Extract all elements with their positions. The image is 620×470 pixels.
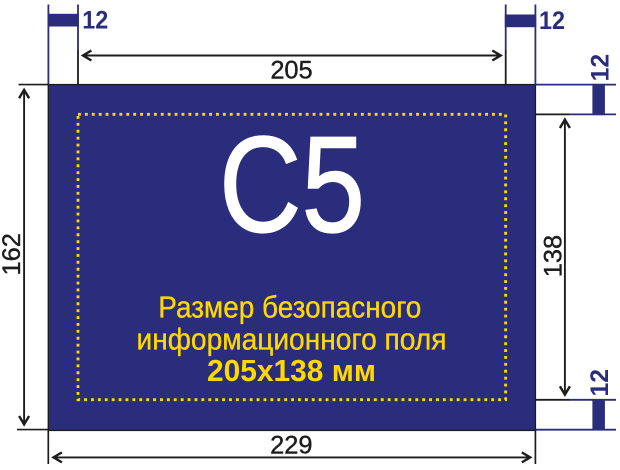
svg-text:12: 12 (587, 54, 615, 82)
svg-text:12: 12 (539, 7, 565, 35)
svg-text:205: 205 (270, 57, 312, 85)
svg-text:205х138 мм: 205х138 мм (207, 354, 376, 388)
svg-text:162: 162 (0, 233, 26, 275)
svg-text:Размер безопасного: Размер безопасного (158, 291, 421, 325)
svg-text:12: 12 (586, 369, 614, 397)
svg-text:12: 12 (82, 7, 108, 35)
svg-text:C5: C5 (219, 109, 365, 262)
svg-text:информационного поля: информационного поля (137, 322, 447, 356)
svg-text:229: 229 (270, 431, 312, 459)
svg-text:138: 138 (540, 235, 568, 277)
